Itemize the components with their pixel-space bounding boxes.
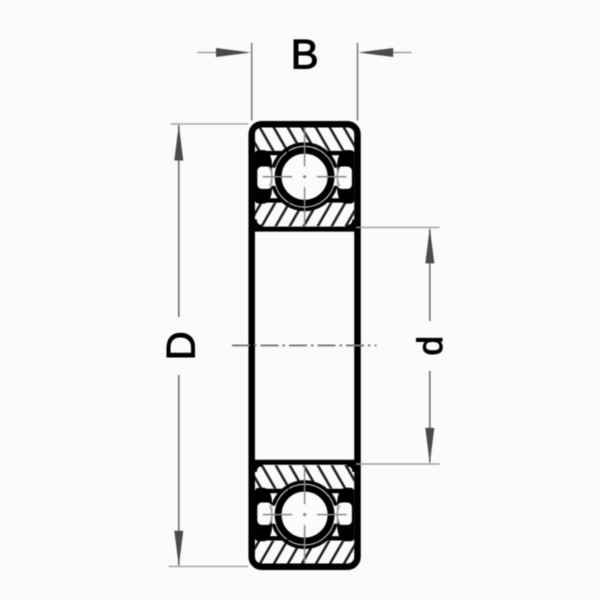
svg-text:D: D	[159, 331, 203, 360]
svg-text:B: B	[291, 30, 319, 77]
svg-text:d: d	[411, 336, 450, 355]
